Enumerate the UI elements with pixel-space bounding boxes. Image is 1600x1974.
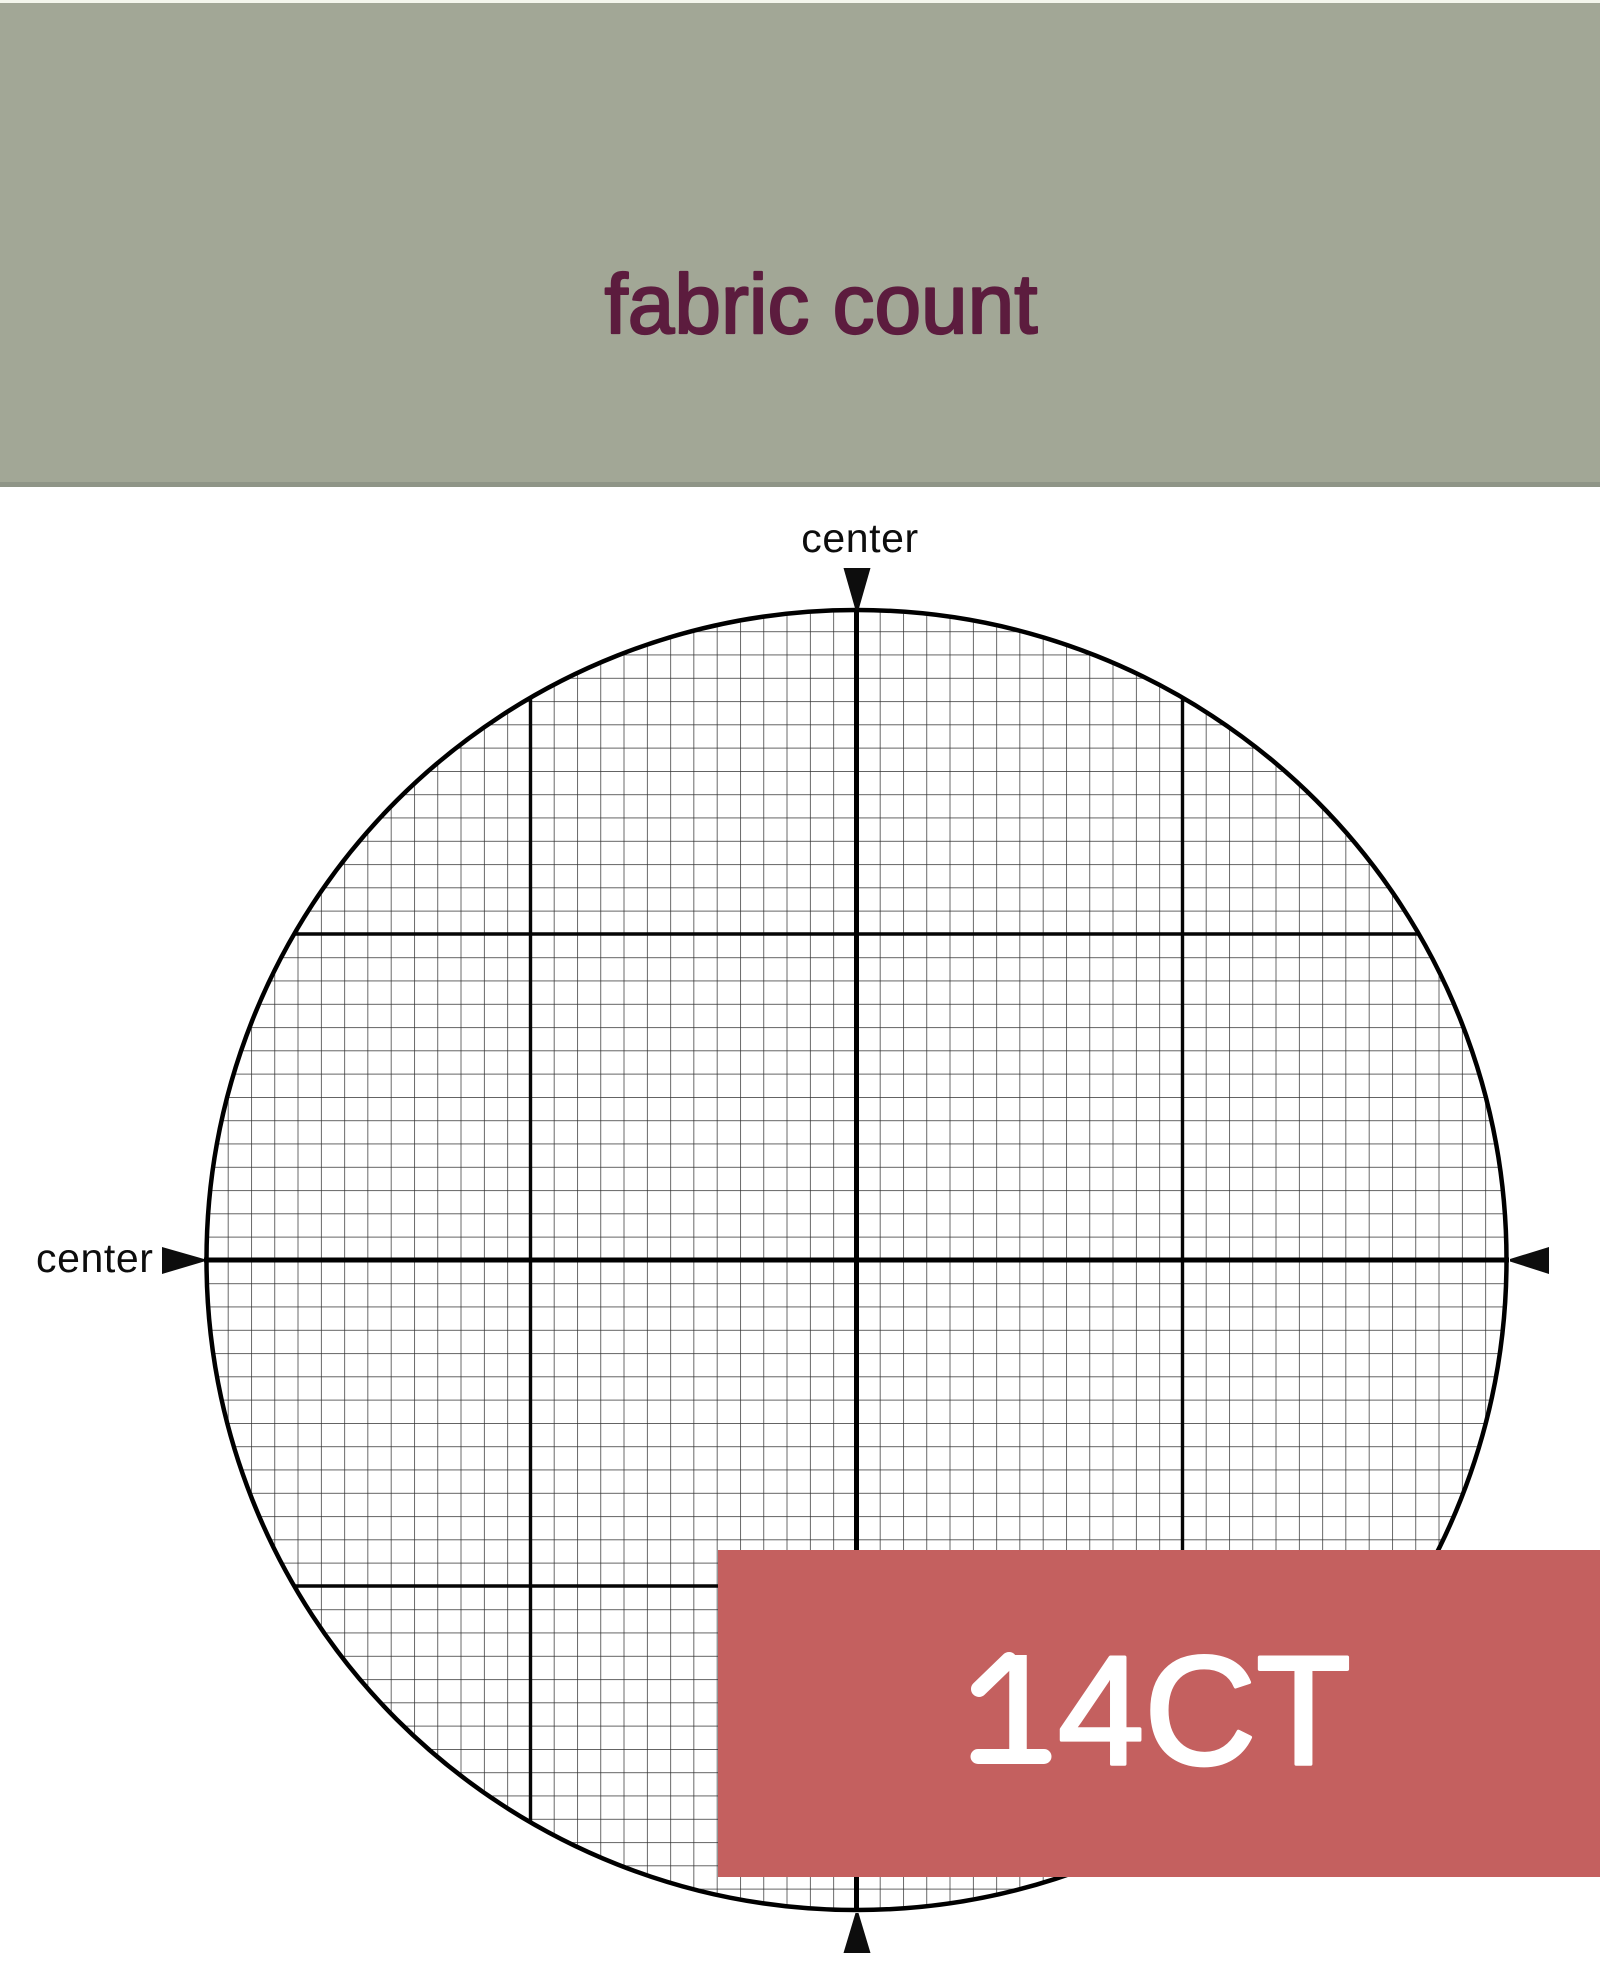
svg-text:center: center	[801, 515, 919, 561]
svg-text:center: center	[36, 1235, 154, 1281]
svg-text:fabric count: fabric count	[605, 257, 1038, 351]
svg-text:4CT: 4CT	[1058, 1624, 1351, 1797]
